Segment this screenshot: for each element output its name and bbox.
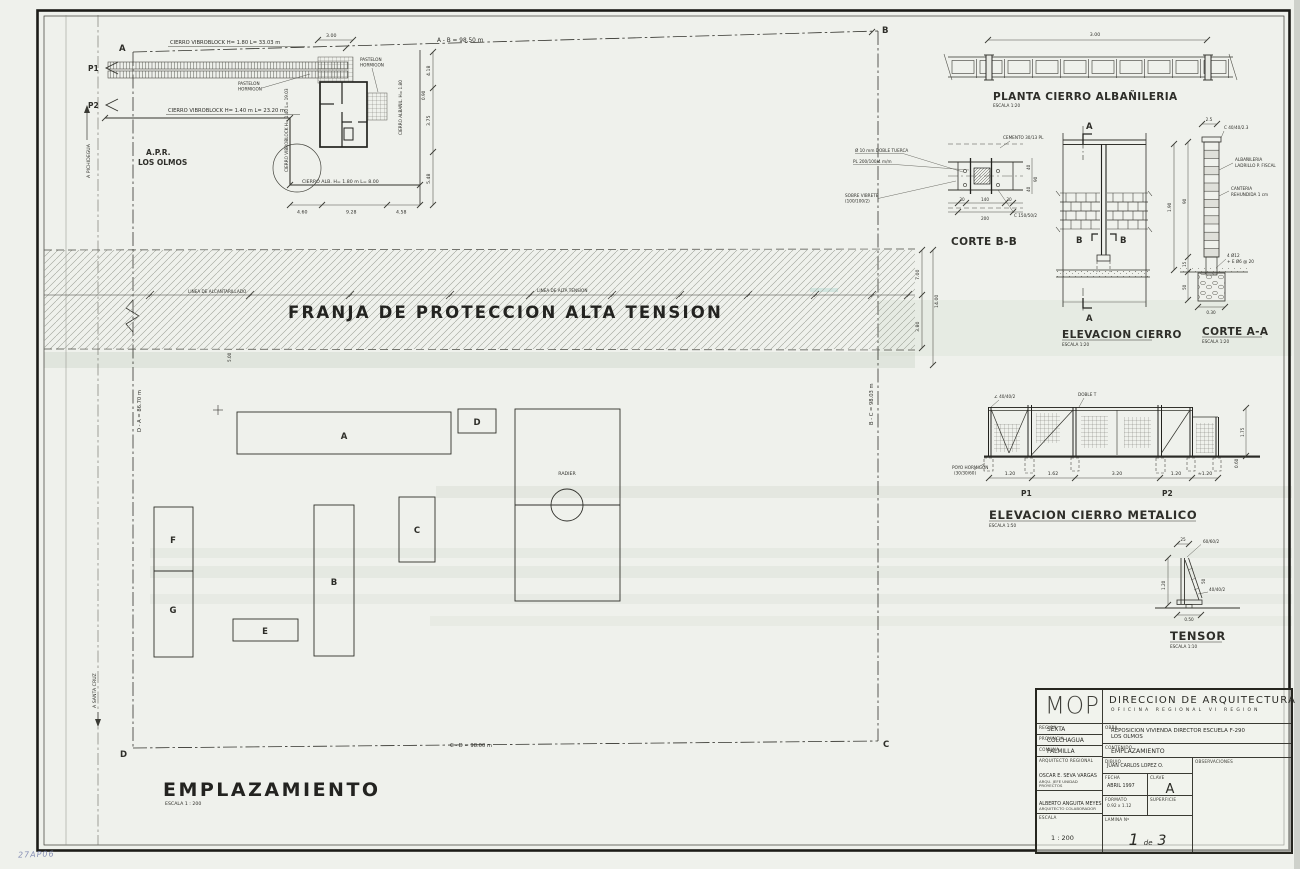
region-cell: REGION SEXTA	[1037, 724, 1103, 735]
radier-label: RADIER	[558, 471, 576, 477]
corner-c: C	[883, 740, 889, 750]
metalico-scale: ESCALA 1:50	[989, 523, 1016, 528]
logo-cell: MOP	[1037, 690, 1103, 724]
dim-ab: A - B = 98.50 m	[437, 38, 484, 44]
section-marker	[1110, 234, 1116, 241]
svg-text:(100/100/2): (100/100/2)	[845, 199, 870, 204]
dim-label: 4.18	[426, 66, 432, 76]
fecha-value: ABRIL 1997	[1103, 780, 1147, 789]
dim-label: 7.00	[915, 270, 921, 280]
apr-detail: P1 P2 CIERRO VIBROBLOCK H= 1.80 L= 33.03…	[88, 33, 433, 216]
building-labels: A B C D E F G RADIER EMPLAZAMIENTO ESCAL…	[163, 418, 576, 807]
perfil-label: C 40/40/2.3	[1224, 125, 1249, 130]
dim-label: 200	[981, 216, 989, 221]
dim-label: 140	[981, 197, 989, 202]
escala-value: 1 : 200	[1037, 820, 1102, 842]
architect-role: ARQUITECTO COLABORADOR	[1037, 807, 1102, 812]
road-label-pichidegua: A PICHIDEGUA	[86, 143, 92, 178]
svg-text:(30/30/60): (30/30/60)	[954, 471, 976, 476]
elevacion-cierro-title: ELEVACION CIERRO	[1062, 329, 1182, 341]
building-g: G	[170, 606, 177, 616]
fence-alb-label: CIERRO ALB. H= 1.80 m L= 8.00	[302, 179, 379, 185]
building-c: C	[414, 526, 420, 536]
title-block: MOP DIRECCION DE ARQUITECTURA OFICINA RE…	[1035, 688, 1293, 854]
dim-label: 2.5	[1206, 117, 1213, 122]
line-right-label: LINEA DE ALTA TENSION	[537, 288, 587, 293]
obra-cell: OBRA REPOSICION VIVIENDA DIRECTOR ESCUEL…	[1103, 724, 1291, 744]
dim-label: 40	[1026, 164, 1031, 170]
post-p2: P2	[1162, 489, 1173, 498]
org-subtitle: OFICINA REGIONAL VI REGION	[1103, 706, 1291, 713]
fence-alb-right-label: CIERRO ALBAÑIL. H= 1.80	[398, 80, 403, 135]
franja-proteccion: LINEA DE ALCANTARILLADO LINEA DE ALTA TE…	[44, 249, 940, 365]
dim-label: 25	[1180, 537, 1186, 542]
canteria-label: CANTERIA	[1231, 186, 1252, 191]
roads: A PICHIDEGUA A SANTA CRUZ	[66, 15, 101, 845]
svg-text:+ E Ø6 @ 20: + E Ø6 @ 20	[1227, 259, 1254, 264]
paving-label: PASTELON	[238, 81, 260, 86]
dim-label: 50	[1201, 578, 1206, 584]
point-p1: P1	[88, 64, 99, 73]
dim-label: 1.20	[1161, 580, 1166, 590]
sobre-label: SOBRE VIBRETE	[845, 193, 879, 198]
house-plan	[320, 82, 367, 147]
dim-label: 4.58	[396, 210, 406, 216]
tensor-top-label: 60/60/2	[1203, 539, 1219, 544]
tensor-scale: ESCALA 1:10	[1170, 644, 1197, 649]
org-title: DIRECCION DE ARQUITECTURA	[1103, 690, 1291, 706]
building-d: D	[473, 418, 480, 428]
marker-a-bottom: A	[1086, 314, 1093, 324]
dim-label: 3.20	[1112, 471, 1122, 477]
tuerca-label: Ø 10 mm DOBLE TUERCA	[855, 148, 908, 153]
dim-label: 3.75	[426, 116, 432, 126]
dim-label: 1.20	[1005, 471, 1015, 477]
lamina-total: 3	[1158, 833, 1167, 849]
dibujo-value: JUAN CARLOS LOPEZ O.	[1103, 764, 1192, 769]
plancha-label: PL 200/100/4 m/m	[853, 159, 892, 164]
contenido-cell: CONTENIDO EMPLAZAMIENTO	[1103, 744, 1291, 758]
obra-value: REPOSICION VIVIENDA DIRECTOR ESCUELA F-2…	[1103, 724, 1291, 734]
svg-text:HORMIGON: HORMIGON	[360, 63, 384, 68]
dim-label: 0.60	[1234, 458, 1239, 468]
dim-label: 1.75	[1240, 427, 1245, 437]
post-p1: P1	[1021, 489, 1032, 498]
plan-scale: ESCALA 1 : 200	[165, 801, 201, 807]
tensor-mid-label: 40/40/2	[1209, 587, 1225, 592]
corte-bb-title: CORTE B-B	[951, 236, 1017, 248]
provincia-cell: PROVINCIA COLCHAGUA	[1037, 735, 1103, 746]
drawing-sheet: A PICHIDEGUA A SANTA CRUZ P1 P2 CIERRO V…	[0, 0, 1300, 869]
dim-label: 1.62	[1048, 471, 1058, 477]
dim-label: 4.60	[297, 210, 307, 216]
planta-cierro-albanileria: 3.00 PLANTA CIERRO ALBAÑILERIA ESCALA 1:…	[944, 32, 1237, 108]
point-p2: P2	[88, 101, 99, 110]
svg-text:LADRILLO P. FISCAL: LADRILLO P. FISCAL	[1235, 163, 1276, 168]
dim-label: 90	[1182, 198, 1187, 204]
fierro-label: 4 Ø12	[1227, 253, 1240, 258]
handwritten-note: 27AP06	[18, 849, 55, 859]
corte-bb: 30 140 30 200 40 90 40 CEMENTO 30/13 PL …	[845, 135, 1044, 248]
cemento-label: CEMENTO 30/13 PL	[1003, 135, 1044, 140]
corner-b: B	[882, 26, 888, 36]
observaciones-cell: OBSERVACIONES	[1193, 758, 1291, 852]
clave-cell: CLAVE A	[1148, 774, 1193, 796]
arquitecto-regional-cell: ARQUITECTO REGIONAL OSCAR E. SEVA VARGAS…	[1037, 757, 1103, 791]
dim-label: 3.00	[326, 33, 336, 39]
arrow-down-icon	[95, 719, 101, 727]
dim-bc: B - C = 98.03 m	[869, 383, 875, 425]
lamina-number: 1	[1129, 830, 1139, 849]
lamina-cell: LAMINA Nº 1 de 3	[1103, 816, 1193, 852]
svg-text:REHUNDIDA 1 cm: REHUNDIDA 1 cm	[1231, 192, 1268, 197]
mop-logo: MOP	[1037, 689, 1102, 720]
dim-label: 0.90	[421, 90, 426, 100]
colaborador-cell: ALBERTO ANGUITA MEYES ARQUITECTO COLABOR…	[1037, 791, 1103, 814]
section-marker	[1092, 234, 1098, 241]
org-cell: DIRECCION DE ARQUITECTURA OFICINA REGION…	[1103, 690, 1291, 724]
planta-cierro-scale: ESCALA 1:20	[993, 103, 1020, 108]
dim-label: 1.20	[1171, 471, 1181, 477]
dim-label: 40	[1026, 186, 1031, 192]
plan-title: EMPLAZAMIENTO	[163, 779, 381, 801]
dibujo-cell: DIBUJO JUAN CARLOS LOPEZ O.	[1103, 758, 1193, 774]
fence-mid-label: CIERRO VIBROBLOCK H= 1.40 m L= 23.20 m	[168, 108, 285, 114]
fence-top-label: CIERRO VIBROBLOCK H= 1.80 L= 33.03 m	[170, 40, 280, 46]
marker-b-right: B	[1120, 236, 1126, 246]
paving-label-2: PASTELON	[360, 57, 382, 62]
corner-d: D	[120, 750, 127, 760]
apr-name: A.P.R.	[146, 148, 171, 157]
dim-label: 0.30	[1206, 310, 1216, 315]
doble-t-label: DOBLE T	[1078, 392, 1097, 397]
comuna-cell: COMUNA PALMILLA	[1037, 746, 1103, 757]
angulo-label: ∠ 40/40/2	[994, 394, 1016, 399]
superficie-cell: SUPERFICIE	[1148, 796, 1193, 816]
metalico-title: ELEVACION CIERRO METALICO	[989, 508, 1197, 522]
elevacion-cierro-metalico: ∠ 40/40/2 DOBLE T POYO HORMIGON (30/30/6…	[952, 392, 1260, 528]
dim-label: 3.80	[915, 322, 921, 332]
building-a: A	[341, 432, 348, 442]
dim-cd: C - D = 98.00 m	[450, 743, 492, 749]
corte-aa-title: CORTE A-A	[1202, 326, 1269, 338]
corner-a: A	[119, 44, 126, 54]
elevacion-cierro-scale: ESCALA 1:20	[1062, 342, 1089, 347]
poyo-label: POYO HORMIGON	[952, 465, 988, 470]
building-f: F	[170, 536, 176, 546]
dim-label: 5.00	[227, 352, 232, 362]
formato-cell: FORMATO 0.92 x 1.12	[1103, 796, 1148, 816]
road-label-santa-cruz: A SANTA CRUZ	[92, 673, 98, 708]
svg-text:HORMIGON: HORMIGON	[238, 87, 262, 92]
escala-cell: ESCALA 1 : 200	[1037, 814, 1103, 852]
fence-vert-label: CIERRO VIBROBLOCK H= 1.40 L= 19.03	[284, 88, 289, 172]
dim-label: 5.48	[426, 174, 432, 184]
dim-label: ≈1.20	[1198, 471, 1212, 477]
clave-value: A	[1148, 782, 1192, 797]
dim-da: D - A = 86.70 m	[137, 390, 143, 432]
page-edge-shadow	[1294, 0, 1300, 869]
section-marker	[1083, 134, 1092, 144]
dim-label: 15	[1182, 261, 1187, 267]
site-boundary: A B C D A - B = 98.50 m B - C = 98.03 m …	[119, 26, 889, 760]
franja-title: FRANJA DE PROTECCION ALTA TENSION	[288, 303, 723, 322]
line-left-label: LINEA DE ALCANTARILLADO	[188, 289, 247, 294]
perfil-label: C 150/50/2	[1014, 213, 1037, 218]
dim-label: 14.00	[934, 295, 940, 308]
corte-aa-scale: ESCALA 1:20	[1202, 339, 1229, 344]
marker-b-left: B	[1076, 236, 1082, 246]
dim-label: 90	[1033, 176, 1038, 182]
dim-label: 1.90	[1167, 202, 1172, 212]
dim-label: 9.28	[346, 210, 356, 216]
planta-cierro-title: PLANTA CIERRO ALBAÑILERIA	[993, 90, 1178, 103]
architect-role: ARQU. JEFE UNIDAD PROYECTOS	[1037, 780, 1102, 789]
tensor-title: TENSOR	[1170, 629, 1226, 643]
albanileria-label: ALBAÑILERIA	[1235, 157, 1262, 162]
apr-name-2: LOS OLMOS	[138, 158, 187, 167]
marker-a-top: A	[1086, 122, 1093, 132]
fecha-cell: FECHA ABRIL 1997	[1103, 774, 1148, 796]
dim-label: 0.50	[1184, 617, 1194, 622]
formato-value: 0.92 x 1.12	[1103, 802, 1147, 810]
dim-label: 50	[1182, 284, 1187, 290]
building-b: B	[331, 578, 337, 588]
dim-label: 3.00	[1090, 32, 1100, 38]
building-e: E	[262, 627, 268, 637]
